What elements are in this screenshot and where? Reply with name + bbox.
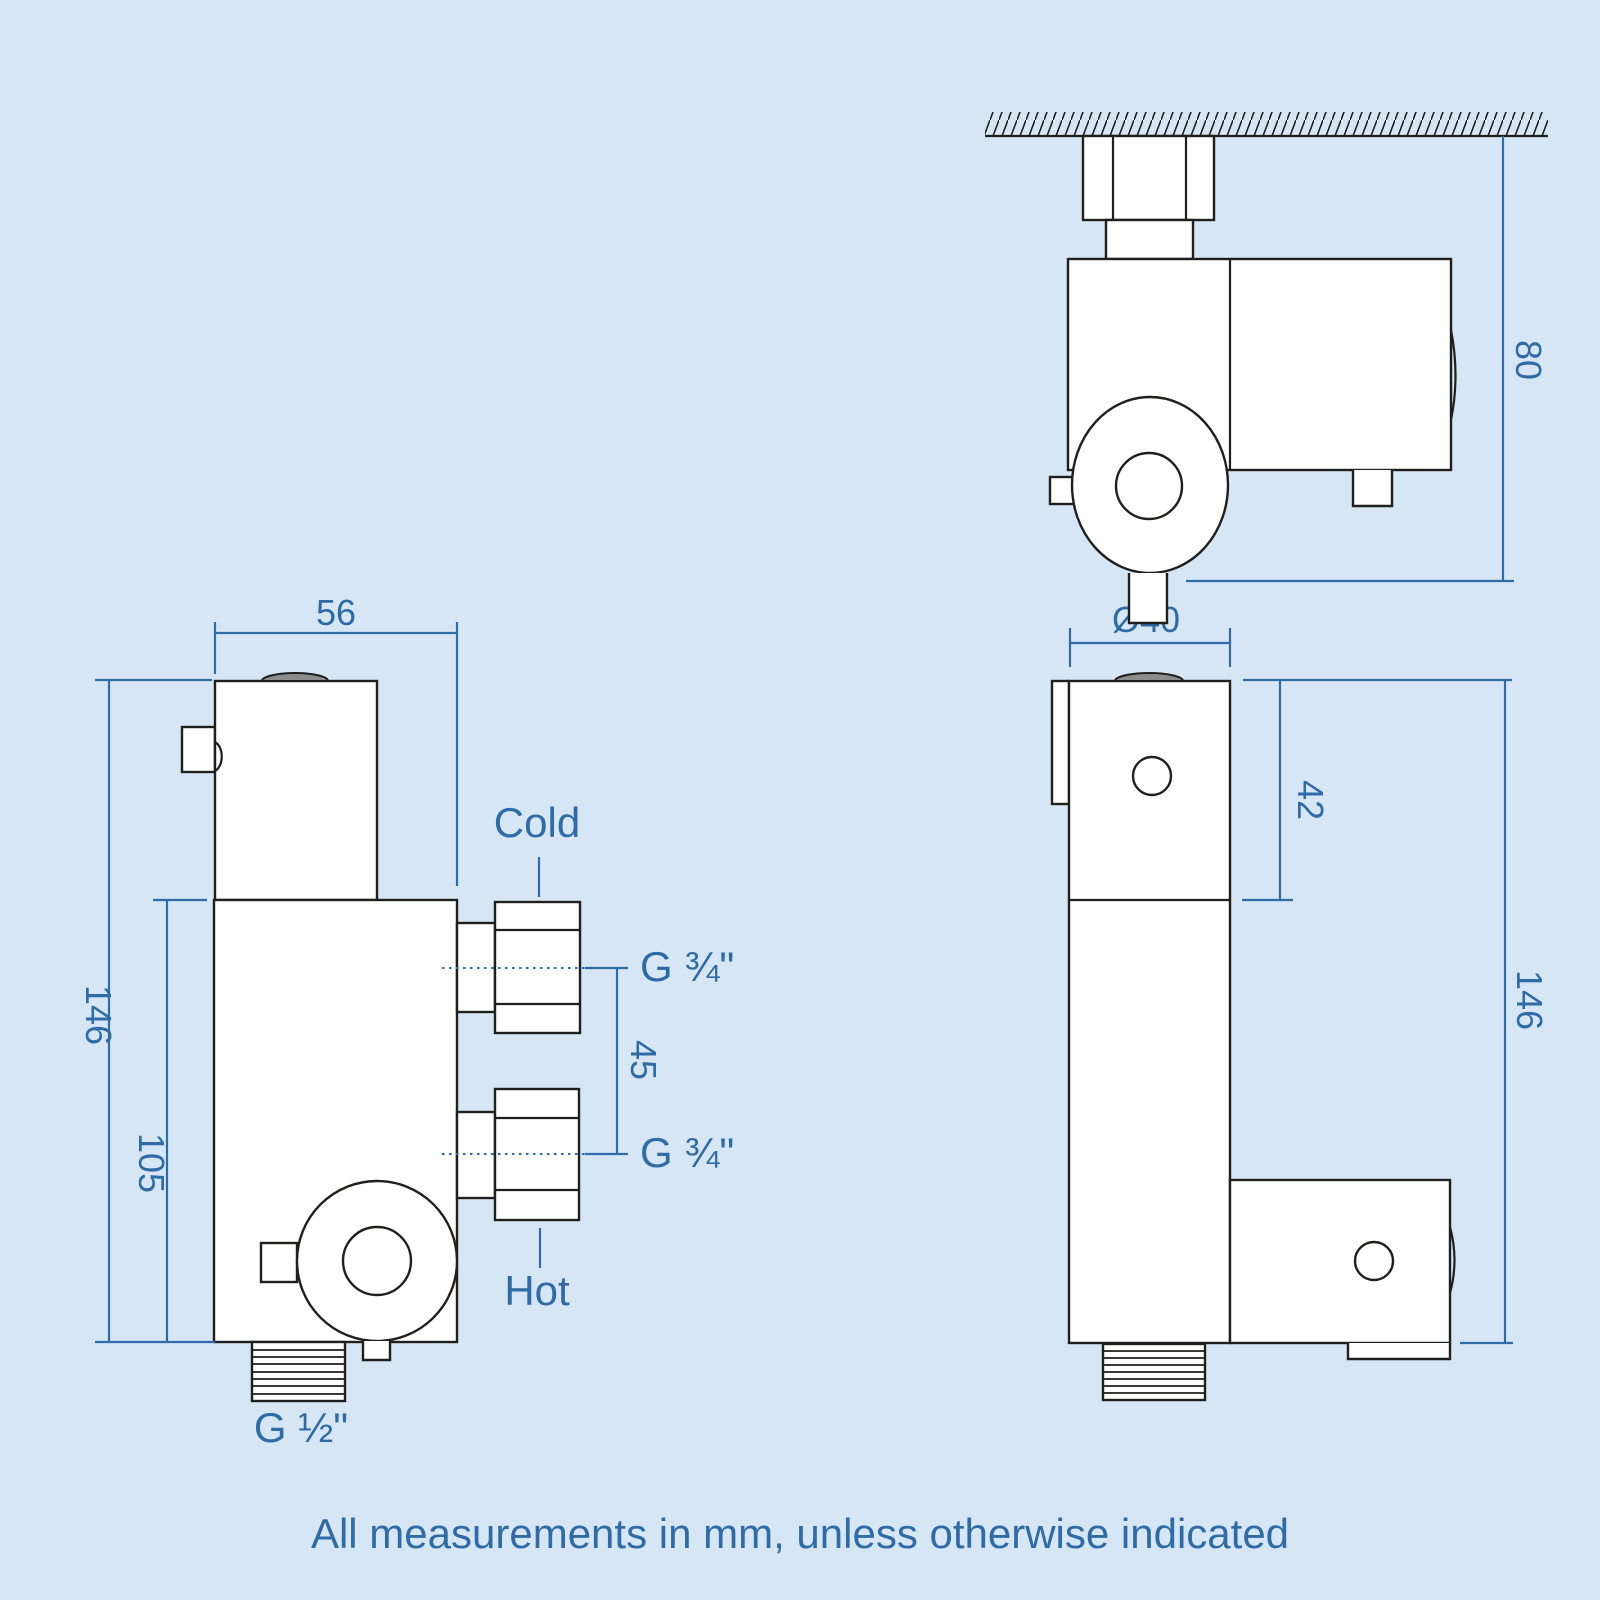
dim-cartridge-42: 42 xyxy=(1242,681,1331,900)
hot-inlet-stub xyxy=(457,1112,495,1198)
dim-lower-105: 105 xyxy=(131,900,207,1342)
side-top-cap xyxy=(1115,673,1183,681)
cold-thread-label: G ¾" xyxy=(640,943,734,990)
dim-height-146: 146 xyxy=(78,680,215,1342)
front-view: 56 146 105 45 Cold Hot G ¾" G ¾" xyxy=(78,592,734,1451)
diagram-page: 56 146 105 45 Cold Hot G ¾" G ¾" xyxy=(0,0,1600,1600)
dim-146-label: 146 xyxy=(78,985,119,1045)
hex-fitting xyxy=(1083,136,1214,220)
wall-hatching xyxy=(985,112,1548,136)
hot-callout: Hot xyxy=(504,1228,570,1314)
diverter-tab xyxy=(182,727,215,772)
cold-inlet-stub xyxy=(457,923,495,1012)
cold-label: Cold xyxy=(494,799,580,846)
outlet-thread-label: G ½" xyxy=(254,1404,348,1451)
top-right-tab xyxy=(1353,470,1392,506)
top-view: 80 xyxy=(985,112,1549,623)
dim-42-label: 42 xyxy=(1290,780,1331,820)
dim-side-146-label: 146 xyxy=(1509,970,1550,1030)
top-knob-tab xyxy=(1050,477,1074,504)
cold-union-nut xyxy=(495,902,580,1033)
knob-bottom-tab xyxy=(363,1341,390,1360)
dim-80-label: 80 xyxy=(1508,340,1549,380)
dim-45-label: 45 xyxy=(623,1040,664,1080)
fitting-neck xyxy=(1106,220,1193,259)
top-knob-bottom-tab xyxy=(1129,573,1167,623)
caption: All measurements in mm, unless otherwise… xyxy=(311,1510,1289,1557)
dim-side-height-146: 146 xyxy=(1460,681,1550,1343)
side-knob-block xyxy=(1230,1180,1450,1343)
cold-callout: Cold xyxy=(494,799,580,897)
side-screw-hole xyxy=(1133,757,1171,795)
hot-union-nut xyxy=(495,1089,579,1220)
upper-body xyxy=(215,681,377,900)
side-knob-hole xyxy=(1355,1242,1393,1280)
dim-56-label: 56 xyxy=(316,592,356,633)
side-view: Ø40 42 146 xyxy=(1052,599,1550,1400)
side-outlet-thread-lines xyxy=(1103,1351,1205,1393)
top-knob-hub xyxy=(1116,453,1182,519)
dim-105-label: 105 xyxy=(131,1133,172,1193)
hot-label: Hot xyxy=(504,1267,570,1314)
top-cap xyxy=(262,673,328,681)
knob-hub xyxy=(343,1227,411,1295)
side-knob-foot xyxy=(1348,1343,1450,1359)
side-tab xyxy=(1052,681,1069,804)
valve-dimension-drawing: 56 146 105 45 Cold Hot G ¾" G ¾" xyxy=(0,0,1600,1600)
hot-thread-label: G ¾" xyxy=(640,1129,734,1176)
knob-side-tab xyxy=(261,1243,297,1282)
